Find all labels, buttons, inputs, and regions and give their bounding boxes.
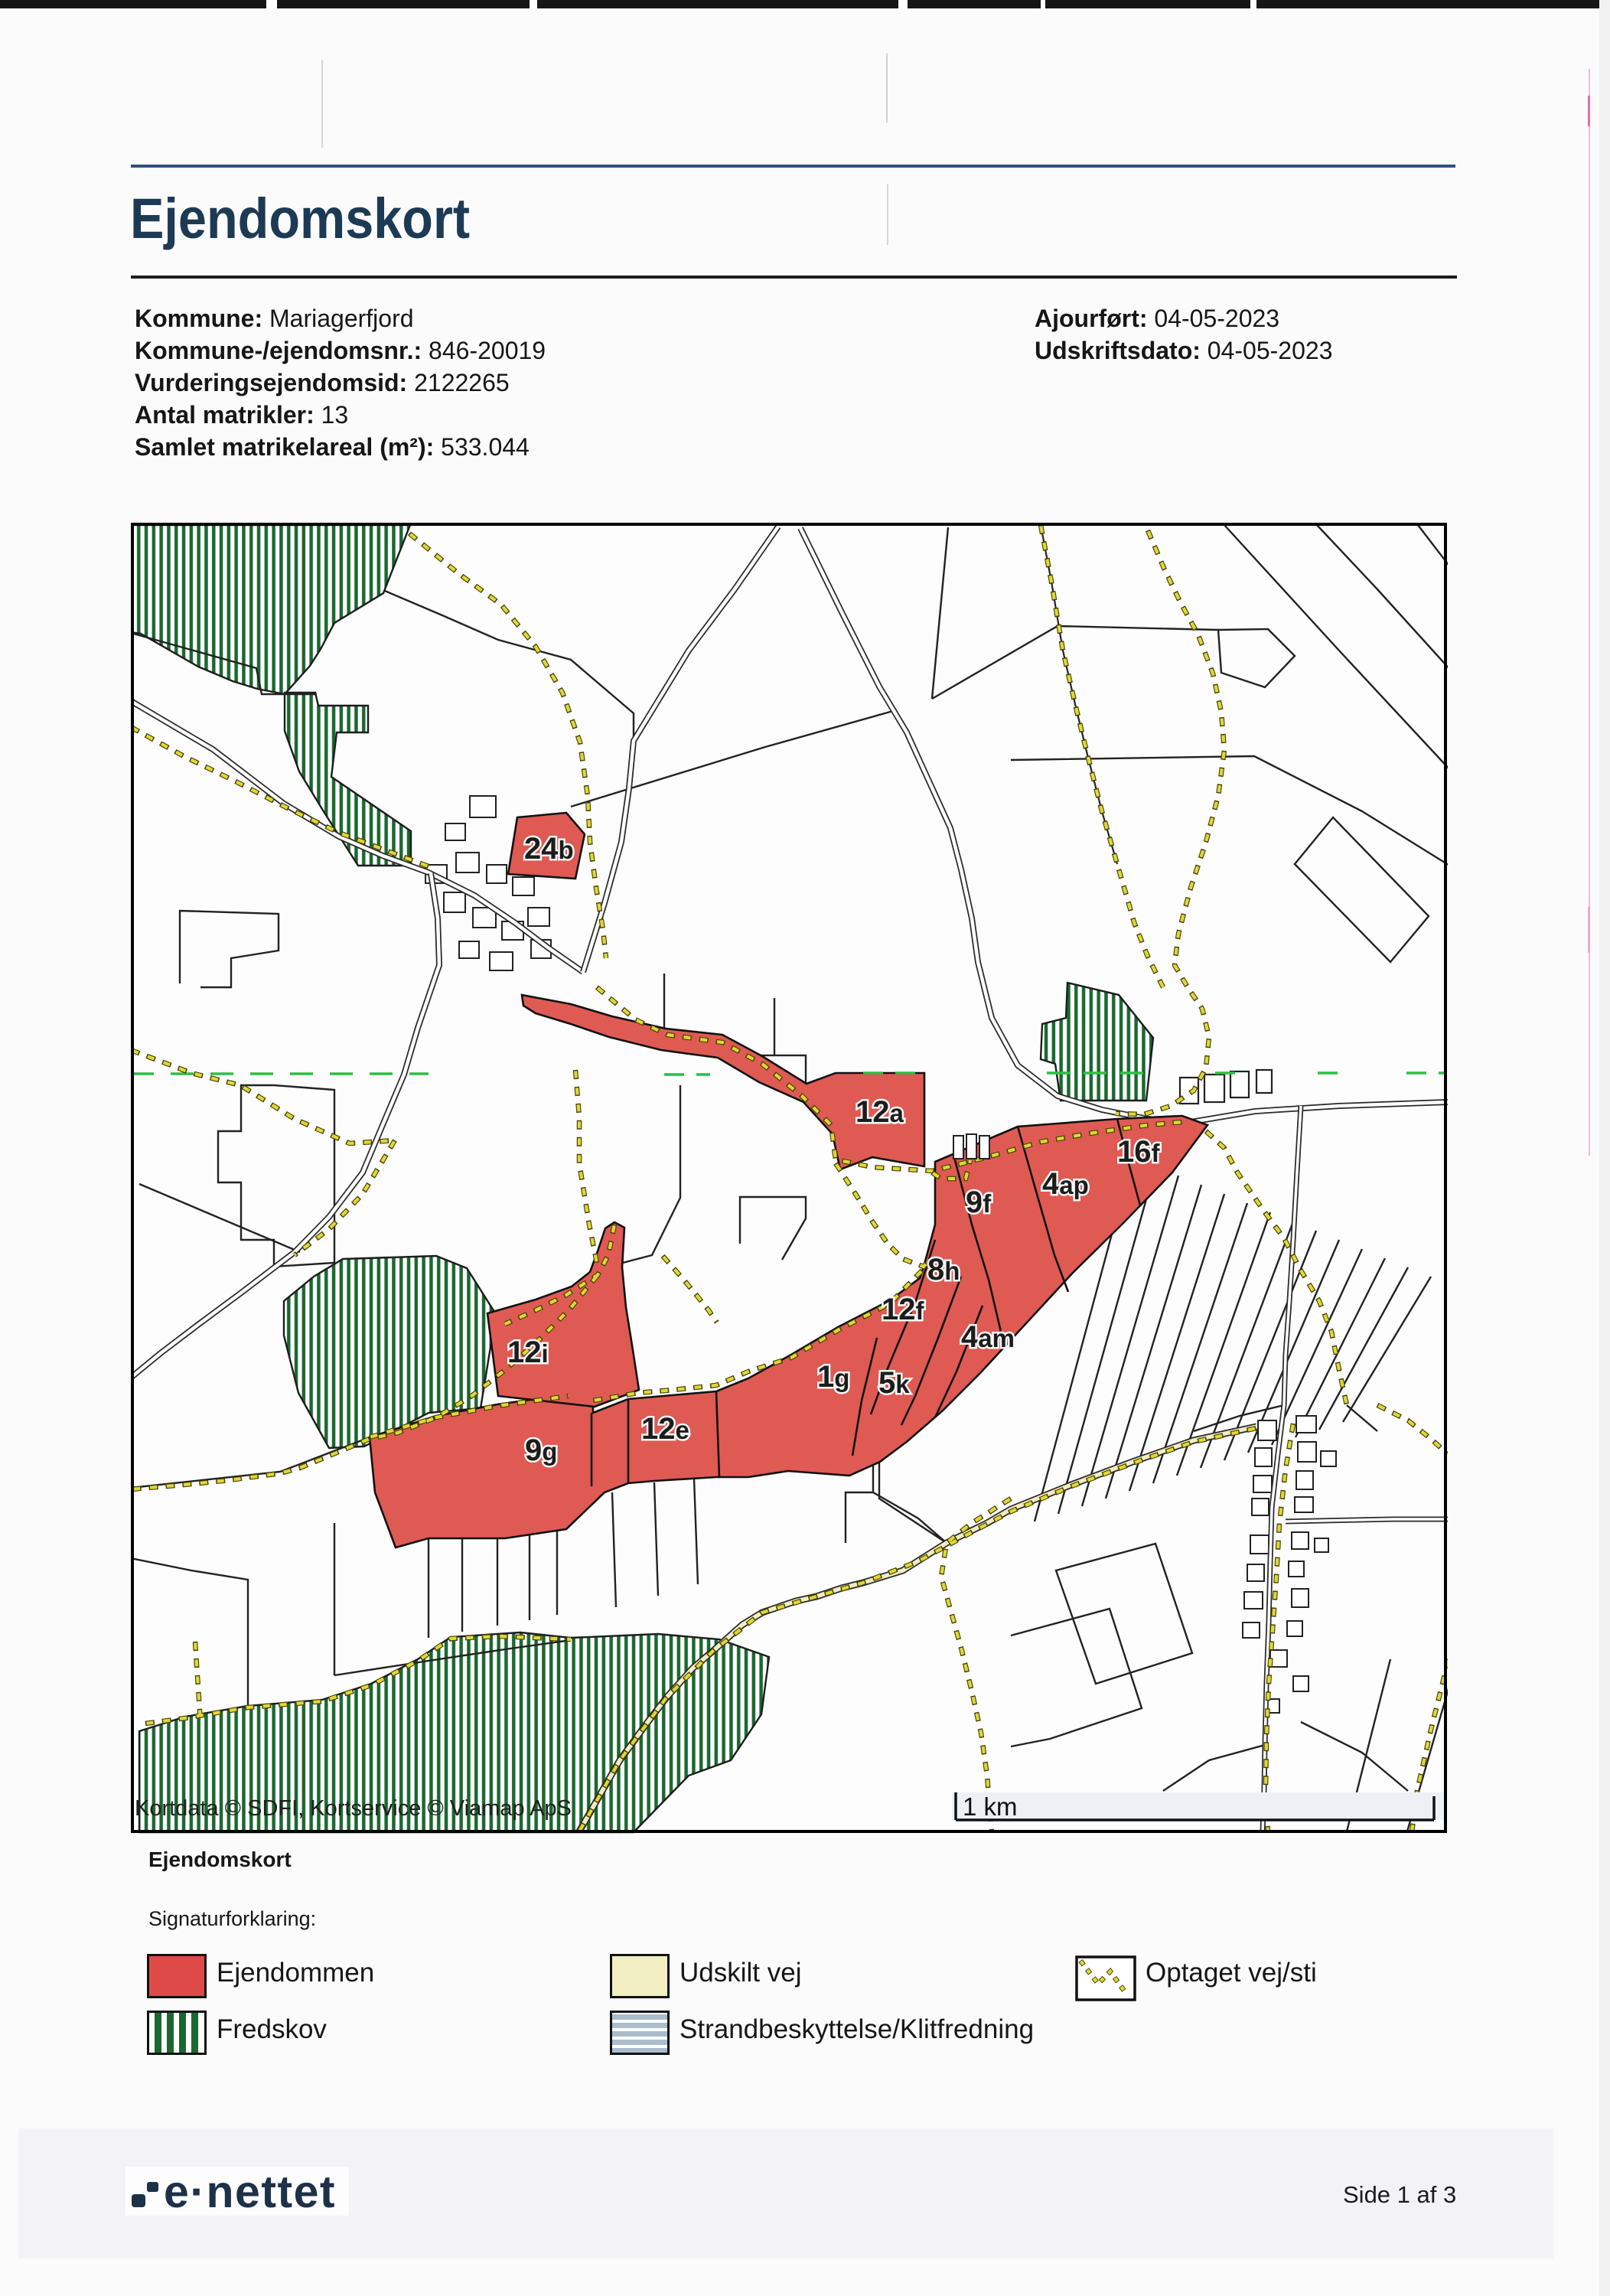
svg-text:12e: 12e [641, 1412, 689, 1446]
svg-text:12a: 12a [856, 1095, 904, 1129]
svg-text:1 km: 1 km [963, 1792, 1018, 1821]
svg-text:4ap: 4ap [1042, 1167, 1089, 1201]
svg-text:9g: 9g [525, 1433, 557, 1467]
svg-text:24b: 24b [524, 832, 574, 866]
svg-text:e·nettet: e·nettet [164, 2174, 336, 2213]
svg-text:8h: 8h [927, 1253, 960, 1287]
svg-text:12i: 12i [507, 1336, 549, 1369]
svg-text:5k: 5k [878, 1366, 910, 1400]
svg-text:16f: 16f [1117, 1135, 1161, 1169]
svg-text:1g: 1g [817, 1360, 849, 1394]
svg-text:12f: 12f [882, 1293, 925, 1326]
svg-text:4am: 4am [961, 1320, 1015, 1354]
svg-text:Kortdata © SDFI, Kortservice ©: Kortdata © SDFI, Kortservice © Viamap Ap… [135, 1796, 572, 1821]
svg-text:9f: 9f [966, 1186, 992, 1219]
